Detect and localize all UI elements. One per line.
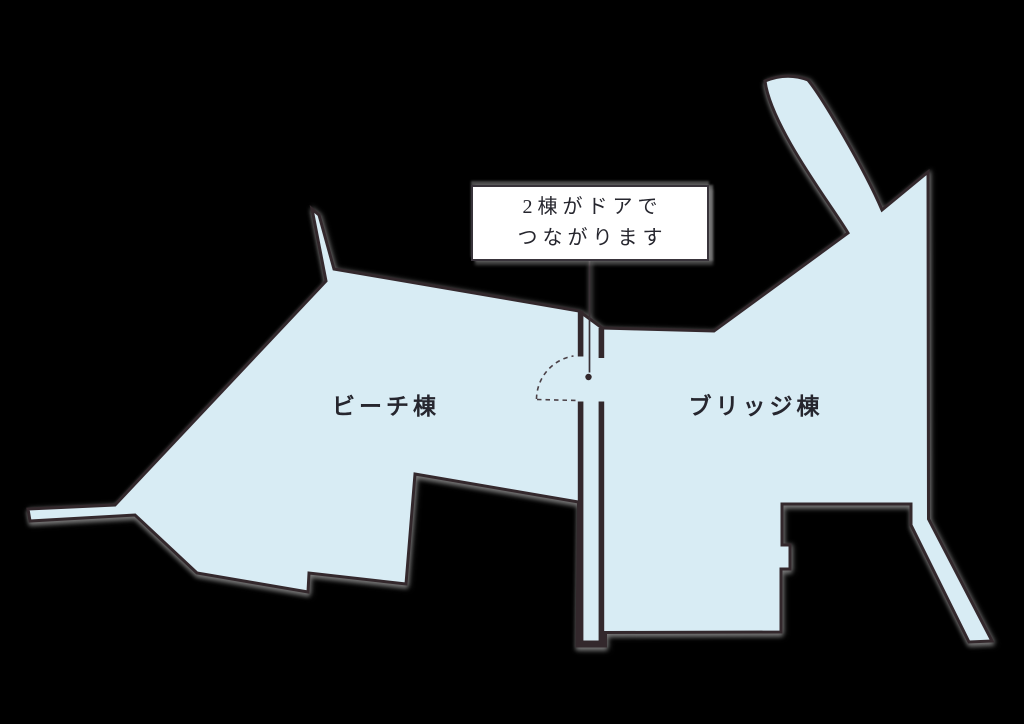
callout-text-line2: つながります [513, 223, 668, 254]
buildings-silhouette [28, 76, 992, 646]
callout-text-line1: 2棟がドアで [518, 192, 663, 223]
beach-wall-upper-jamb [578, 311, 584, 357]
callout-pointer-dot [585, 374, 591, 380]
beach-building-label: ビーチ棟 [332, 394, 440, 419]
buildings-group: ビーチ棟 ブリッジ棟 [28, 76, 992, 647]
beach-wall-lower [578, 402, 584, 642]
floorplan-figure: ビーチ棟 ブリッジ棟 2棟がドアで つながります [0, 0, 1024, 724]
bridge-wall-lower [599, 402, 605, 642]
corridor-end-cap [577, 641, 606, 648]
bridge-wall-upper-jamb [599, 328, 605, 358]
bridge-building-label: ブリッジ棟 [689, 393, 824, 419]
callout-box: 2棟がドアで つながります [471, 185, 709, 261]
floorplan-svg: ビーチ棟 ブリッジ棟 [0, 0, 1024, 724]
